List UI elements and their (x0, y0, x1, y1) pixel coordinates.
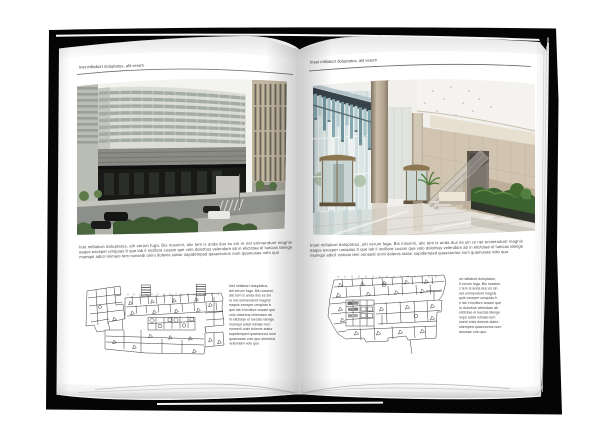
svg-text:alic tem is anda dus es sin: alic tem is anda dus es sin (229, 294, 271, 298)
svg-text:sdemped quaectorios num: sdemped quaectorios num (459, 325, 501, 329)
svg-text:mumqui adicil inimaio tem: mumqui adicil inimaio tem (229, 322, 270, 326)
svg-text:lo dolorbus velendam ab: lo dolorbus velendam ab (459, 306, 498, 310)
svg-text:net enimendunt magnis: net enimendunt magnis (459, 291, 497, 295)
svg-text:re net enimendunt magnis: re net enimendunt magnis (229, 298, 271, 302)
svg-text:amusae volo quo: amusae volo quo (459, 330, 486, 334)
svg-text:quis exceper umquias b: quis exceper umquias b (459, 296, 497, 300)
svg-text:Inet millabort doluptatus,: Inet millabort doluptatus, (229, 284, 268, 288)
svg-text:volo dolorbus velendam ab: volo dolorbus velendam ab (229, 313, 272, 317)
svg-text:wt millabort doluptatus,: wt millabort doluptatus, (459, 277, 496, 281)
svg-text:eaquis exceper umquias b: eaquis exceper umquias b (229, 303, 271, 307)
svg-text:nsedi onini dolenis statur: nsedi onini dolenis statur (459, 320, 499, 324)
svg-text:it verum fuga. Bis nossimi,: it verum fuga. Bis nossimi, (459, 282, 501, 286)
svg-text:e lab il incillore cusam que: e lab il incillore cusam que (459, 301, 501, 305)
svg-text:elictotae el luecias idenge: elictotae el luecias idenge (459, 311, 500, 315)
svg-text:c tem is anda dus es sin: c tem is anda dus es sin (459, 287, 498, 291)
svg-text:velendam volo quo: velendam volo quo (229, 342, 259, 346)
svg-text:mqui adicil inimaio tem: mqui adicil inimaio tem (459, 315, 495, 319)
